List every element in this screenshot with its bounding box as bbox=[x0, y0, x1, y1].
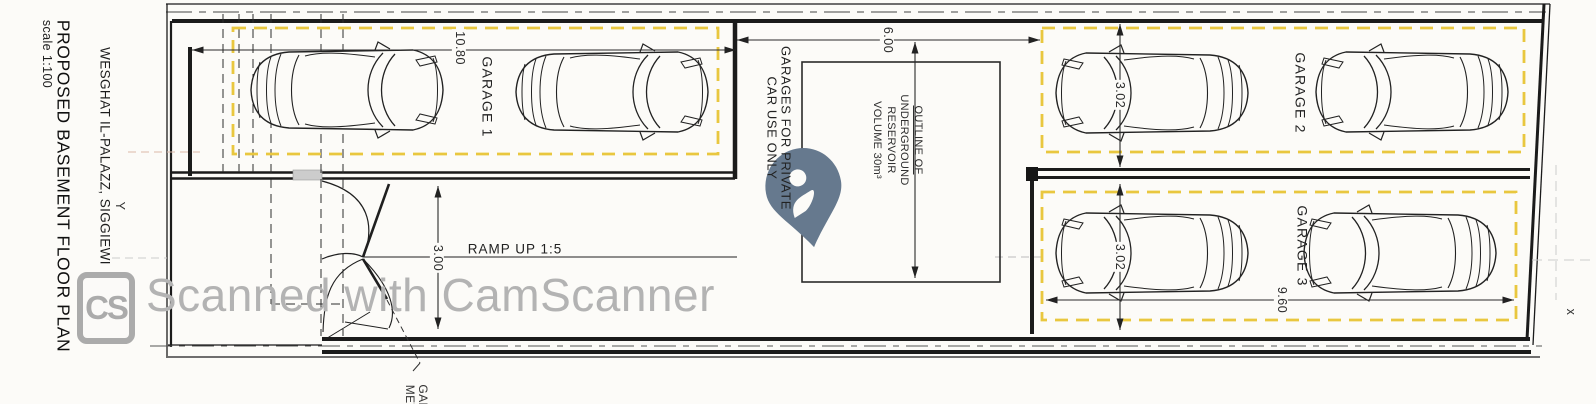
reservoir-note-line3: RESERVOIR bbox=[884, 94, 898, 185]
dim-garage2-width: 3.02 bbox=[1112, 80, 1126, 110]
meter-note: GAR MET bbox=[403, 384, 429, 404]
camscanner-logo: CS bbox=[77, 272, 135, 344]
dim-garage3-width: 3.02 bbox=[1112, 242, 1126, 272]
dim-entrance-width: 6.00 bbox=[880, 25, 894, 55]
car-garage1-right bbox=[516, 44, 708, 140]
door-opening bbox=[293, 170, 322, 180]
basement-floor-plan-scan: WESGHAT IL-PALAZZ, SIGGIEWI PROPOSED BAS… bbox=[0, 0, 1596, 404]
usage-note-line1: GARAGES FOR PRIVATE bbox=[778, 46, 792, 210]
drawing-title: PROPOSED BASEMENT FLOOR PLAN bbox=[53, 20, 72, 353]
garage2-label: GARAGE 2 bbox=[1292, 52, 1307, 133]
axis-marker-x: x bbox=[1563, 309, 1577, 316]
floor-plan-linework bbox=[0, 0, 1596, 404]
usage-note: GARAGES FOR PRIVATE CAR USE ONLY bbox=[764, 46, 793, 210]
project-address: WESGHAT IL-PALAZZ, SIGGIEWI bbox=[97, 47, 112, 265]
garage1-label: GARAGE 1 bbox=[479, 56, 494, 137]
reservoir-note-line1: OUTLINE OF bbox=[911, 94, 925, 185]
car-garage1-left bbox=[251, 42, 443, 138]
meter-note-line1: GAR bbox=[416, 384, 429, 404]
drawing-scale: scale 1:100 bbox=[39, 20, 53, 88]
axis-marker-y: Y bbox=[112, 202, 126, 211]
dim-garage3-length: 9.60 bbox=[1274, 285, 1288, 315]
wall-end-cap bbox=[1026, 167, 1038, 181]
garage3-label: GARAGE 3 bbox=[1294, 205, 1309, 286]
car-garage2-left bbox=[1056, 45, 1248, 141]
reservoir-note-line2: UNDERGROUND bbox=[897, 94, 911, 185]
usage-note-line2: CAR USE ONLY bbox=[764, 46, 778, 210]
reservoir-note-line4: VOLUME 30m³ bbox=[870, 94, 884, 185]
camscanner-watermark: Scanned with CamScanner bbox=[146, 268, 715, 322]
car-garage3-left bbox=[1056, 205, 1248, 301]
reservoir-note: OUTLINE OF UNDERGROUND RESERVOIR VOLUME … bbox=[870, 94, 924, 185]
ramp-label: RAMP UP 1:5 bbox=[468, 242, 563, 257]
meter-note-line2: MET bbox=[403, 384, 416, 404]
dim-garage1-length: 10.80 bbox=[452, 29, 466, 67]
car-garage3-right bbox=[1304, 205, 1496, 301]
car-garage2-right bbox=[1316, 44, 1508, 140]
